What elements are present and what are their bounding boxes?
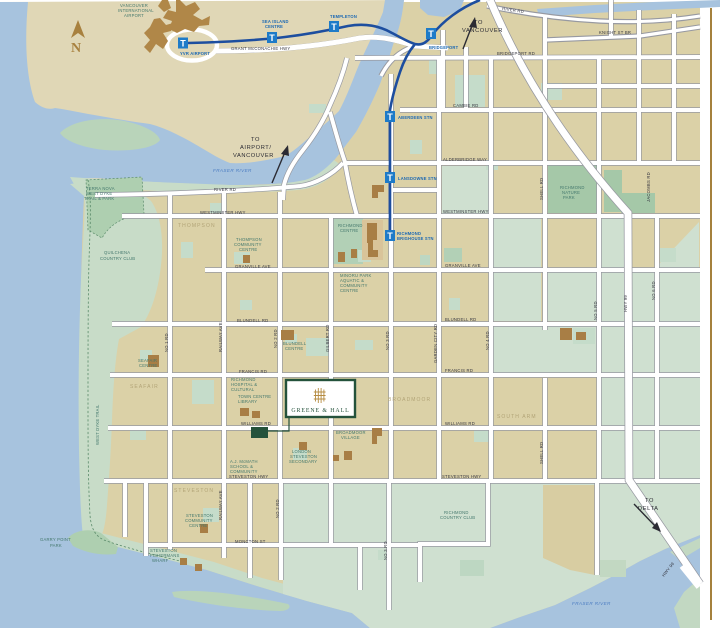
- svg-text:TEMPLETON: TEMPLETON: [330, 14, 357, 19]
- svg-text:CENTRE: CENTRE: [139, 363, 157, 368]
- svg-text:MONCTON ST: MONCTON ST: [235, 539, 266, 544]
- svg-text:T: T: [428, 29, 434, 39]
- svg-text:FRANCIS RD: FRANCIS RD: [445, 368, 473, 373]
- svg-text:NO 2 RD: NO 2 RD: [273, 329, 278, 348]
- svg-text:FRANCIS RD: FRANCIS RD: [239, 369, 267, 374]
- svg-text:CENTRE: CENTRE: [340, 288, 358, 293]
- svg-text:CENTRE: CENTRE: [239, 247, 257, 252]
- svg-text:PARK: PARK: [563, 195, 575, 200]
- svg-text:GARRY POINT: GARRY POINT: [40, 537, 71, 542]
- svg-text:CENTRE: CENTRE: [340, 228, 358, 233]
- svg-text:JACOMBS RD: JACOMBS RD: [646, 172, 651, 202]
- svg-text:HWY 99: HWY 99: [623, 295, 628, 312]
- svg-text:BRIDGEPORT: BRIDGEPORT: [429, 45, 459, 50]
- svg-text:CENTRE: CENTRE: [189, 523, 207, 528]
- svg-text:RAILWAY AVE: RAILWAY AVE: [218, 322, 223, 352]
- svg-text:NO 4 RD: NO 4 RD: [485, 331, 490, 350]
- svg-text:GRANVILLE AVE: GRANVILLE AVE: [235, 264, 271, 269]
- svg-text:NO 3 RD: NO 3 RD: [385, 331, 390, 350]
- svg-text:THOMPSON: THOMPSON: [178, 223, 216, 229]
- svg-text:WHARF: WHARF: [152, 558, 169, 563]
- svg-text:CENTRE: CENTRE: [265, 24, 283, 29]
- svg-text:FRASER RIVER: FRASER RIVER: [213, 168, 252, 173]
- svg-text:AIRPORT: AIRPORT: [124, 13, 144, 18]
- svg-text:VANCOUVER: VANCOUVER: [462, 28, 503, 34]
- svg-text:KNIGHT ST BR: KNIGHT ST BR: [599, 30, 631, 35]
- svg-text:LIBRARY: LIBRARY: [238, 399, 257, 404]
- svg-text:COUNTRY CLUB: COUNTRY CLUB: [440, 515, 475, 520]
- svg-text:BLUNDELL RD: BLUNDELL RD: [445, 317, 476, 322]
- svg-text:AIRPORT/: AIRPORT/: [240, 145, 272, 151]
- svg-text:PARK: PARK: [50, 543, 62, 548]
- svg-text:QUILCHENA: QUILCHENA: [104, 250, 130, 255]
- svg-text:NO 2 RD: NO 2 RD: [275, 499, 280, 518]
- svg-text:NO 5 RD: NO 5 RD: [593, 301, 598, 320]
- svg-text:LANSDOWNE STN: LANSDOWNE STN: [398, 176, 437, 181]
- svg-text:T: T: [269, 33, 275, 43]
- svg-text:T: T: [180, 39, 186, 49]
- svg-text:WESTMINSTER HWY: WESTMINSTER HWY: [200, 210, 246, 215]
- svg-text:TRAIL & PARK: TRAIL & PARK: [84, 196, 114, 201]
- svg-text:YVR AIRPORT: YVR AIRPORT: [180, 51, 210, 56]
- svg-text:CAMBIE RD: CAMBIE RD: [453, 103, 479, 108]
- svg-text:SECONDARY: SECONDARY: [289, 459, 317, 464]
- svg-text:CULTURAL: CULTURAL: [231, 387, 255, 392]
- svg-text:COUNTRY CLUB: COUNTRY CLUB: [100, 256, 135, 261]
- svg-text:T: T: [387, 112, 393, 122]
- svg-text:CENTRE: CENTRE: [285, 346, 303, 351]
- svg-text:NO 3 RD: NO 3 RD: [383, 541, 388, 560]
- svg-text:BRIDGEPORT RD: BRIDGEPORT RD: [497, 51, 535, 56]
- svg-text:ABERDEEN STN: ABERDEEN STN: [398, 115, 433, 120]
- svg-text:SOUTH ARM: SOUTH ARM: [497, 414, 537, 420]
- svg-text:GARDEN CITY RD: GARDEN CITY RD: [433, 324, 438, 363]
- svg-text:GRANVILLE AVE: GRANVILLE AVE: [445, 263, 481, 268]
- svg-text:NO 1 RD: NO 1 RD: [164, 333, 169, 352]
- svg-text:RIVER RD: RIVER RD: [214, 187, 236, 192]
- svg-text:SHELL RD: SHELL RD: [539, 178, 544, 200]
- svg-text:BROADMOOR: BROADMOOR: [388, 397, 431, 403]
- svg-text:N: N: [71, 41, 81, 56]
- svg-text:T: T: [387, 173, 393, 183]
- svg-text:GRANT McCONACHIE HWY: GRANT McCONACHIE HWY: [231, 46, 290, 51]
- svg-text:VANCOUVER: VANCOUVER: [233, 153, 274, 159]
- svg-text:GILBERT RD: GILBERT RD: [325, 325, 330, 352]
- svg-text:RAILWAY AVE: RAILWAY AVE: [218, 490, 223, 520]
- svg-text:NO 6 RD: NO 6 RD: [651, 281, 656, 300]
- svg-text:SEAFAIR: SEAFAIR: [130, 384, 159, 390]
- svg-text:WEST DYKE TRAIL: WEST DYKE TRAIL: [95, 404, 100, 445]
- svg-text:FRASER RIVER: FRASER RIVER: [572, 601, 611, 606]
- svg-text:GREENE & HALL: GREENE & HALL: [291, 408, 349, 414]
- svg-text:STEVESTON HWY: STEVESTON HWY: [229, 474, 268, 479]
- svg-text:WILLIAMS RD: WILLIAMS RD: [241, 421, 271, 426]
- svg-text:TO: TO: [645, 498, 654, 504]
- svg-text:T: T: [331, 22, 337, 32]
- svg-text:STEVESTON: STEVESTON: [174, 488, 214, 494]
- svg-text:WESTMINSTER HWY: WESTMINSTER HWY: [443, 209, 489, 214]
- svg-text:BLUNDELL RD: BLUNDELL RD: [237, 318, 268, 323]
- svg-text:SHELL RD: SHELL RD: [539, 442, 544, 464]
- svg-text:VILLAGE: VILLAGE: [341, 435, 360, 440]
- svg-text:BRIGHOUSE STN: BRIGHOUSE STN: [397, 236, 434, 241]
- svg-text:ALDERBRIDGE WAY: ALDERBRIDGE WAY: [443, 157, 487, 162]
- svg-text:WILLIAMS RD: WILLIAMS RD: [445, 421, 475, 426]
- svg-text:STEVESTON HWY: STEVESTON HWY: [442, 474, 481, 479]
- svg-text:T: T: [387, 231, 393, 241]
- svg-text:TO: TO: [251, 137, 260, 143]
